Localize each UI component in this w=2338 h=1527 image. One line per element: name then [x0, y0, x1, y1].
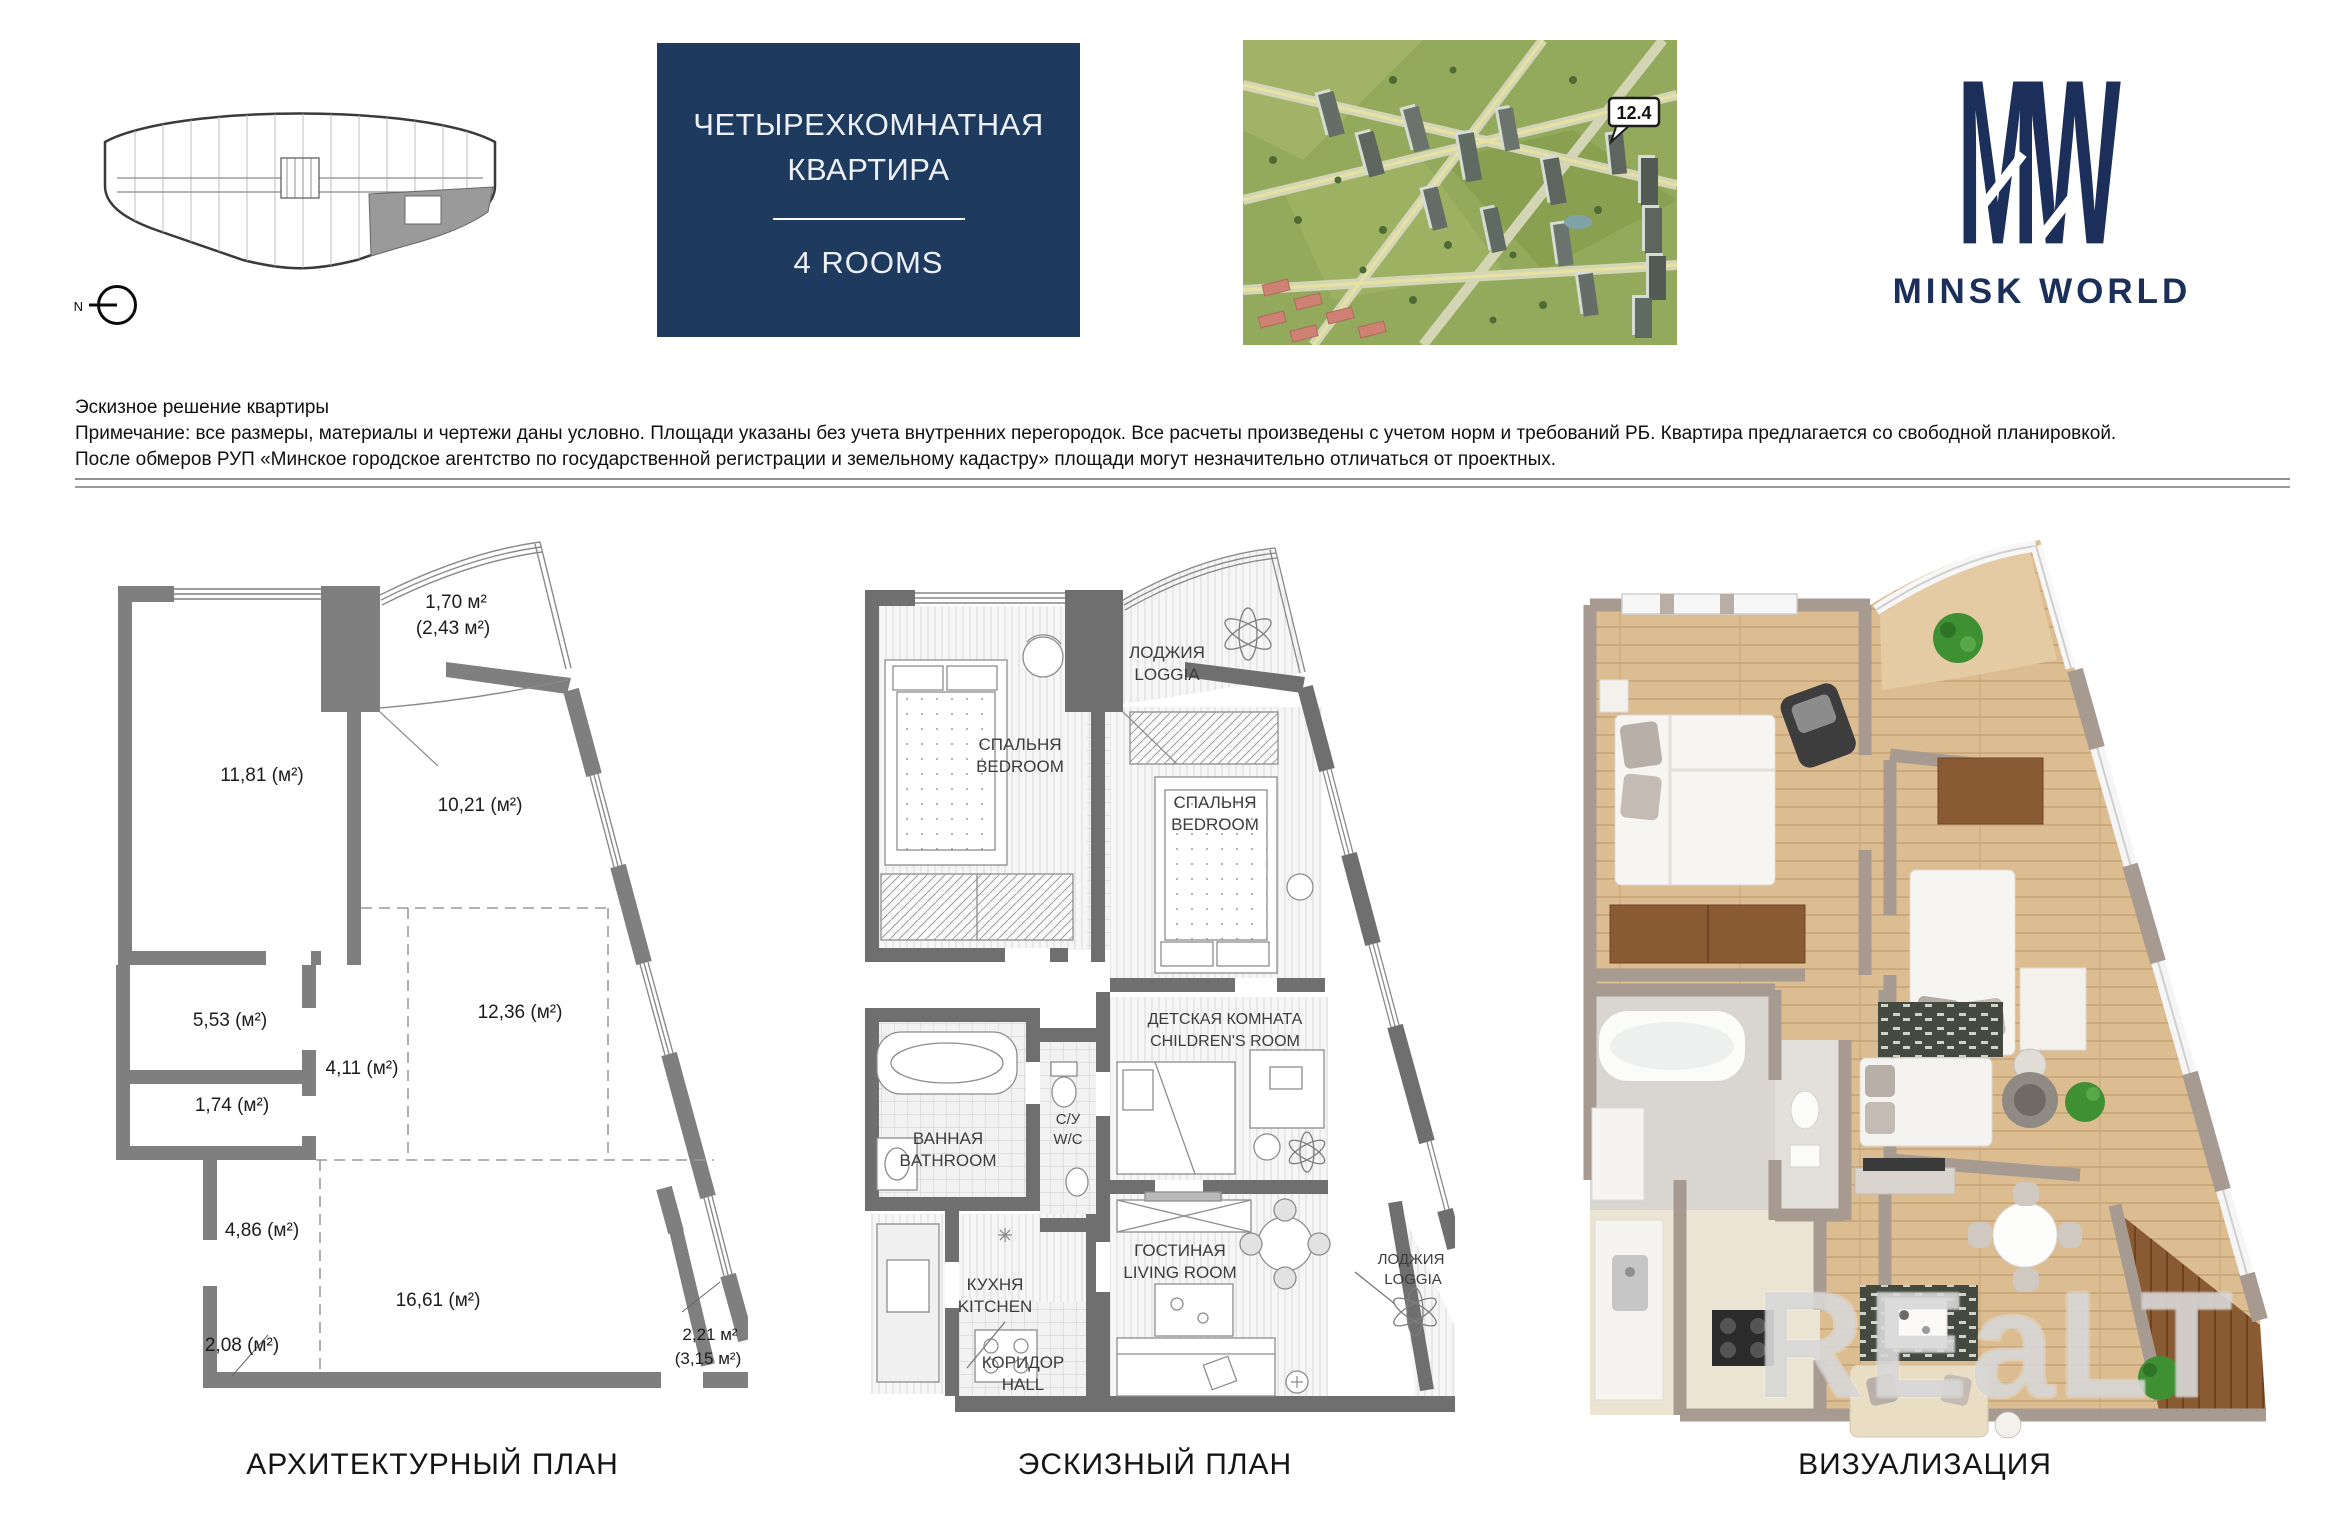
area-12-36: 12,36 (м²)	[478, 1002, 563, 1023]
key-plan: N	[55, 30, 515, 340]
arch-dashed-partitions	[316, 908, 714, 1372]
label-children-ru: ДЕТСКАЯ КОМНАТА	[1148, 1011, 1303, 1028]
disclaimer-line-2: Примечание: все размеры, материалы и чер…	[75, 421, 2315, 447]
area-5-53: 5,53 (м²)	[193, 1010, 267, 1031]
area-2-08: 2,08 (м²)	[205, 1335, 279, 1356]
label-loggia-top-en: LOGGIA	[1134, 665, 1200, 684]
arch-window-top	[174, 586, 321, 602]
flyer-page: N ЧЕТЫРЕХКОМНАТНАЯ КВАРТИРА 4 ROOMS	[0, 0, 2338, 1527]
arch-area-labels: 1,70 м² (2,43 м²) 11,81 (м²) 10,21 (м²) …	[193, 592, 741, 1368]
label-loggia-bottom-en: LOGGIA	[1384, 1271, 1442, 1288]
building-number-label: 12.4	[1616, 103, 1651, 123]
title-line-2: КВАРТИРА	[787, 152, 949, 188]
area-loggia-top-total: (2,43 м²)	[416, 618, 490, 639]
arch-diagonal-wall	[571, 690, 746, 1340]
arch-loggia2-wall	[676, 1230, 708, 1365]
area-1-74: 1,74 (м²)	[195, 1095, 269, 1116]
label-hall-ru: КОРИДОР	[982, 1353, 1065, 1372]
label-loggia-bottom-ru: ЛОДЖИЯ	[1378, 1251, 1445, 1268]
area-11-81: 11,81 (м²)	[220, 765, 303, 786]
caption-sketch-plan: ЭСКИЗНЫЙ ПЛАН	[855, 1448, 1455, 1482]
area-16-61: 16,61 (м²)	[396, 1290, 481, 1311]
label-bathroom-ru: ВАННАЯ	[913, 1129, 983, 1148]
label-children-en: CHILDREN'S ROOM	[1150, 1033, 1300, 1050]
aerial-render: 12.4	[1243, 40, 1677, 345]
north-label: N	[74, 299, 83, 314]
label-loggia-top-ru: ЛОДЖИЯ	[1129, 643, 1205, 662]
label-wc-en: W/C	[1053, 1131, 1082, 1148]
area-10-21: 10,21 (м²)	[438, 795, 523, 816]
stair-core	[281, 158, 319, 198]
area-4-86: 4,86 (м²)	[225, 1220, 299, 1241]
label-hall-en: HALL	[1002, 1375, 1045, 1394]
label-bedroom2-en: BEDROOM	[1171, 815, 1259, 834]
label-kitchen-en: KITCHEN	[958, 1297, 1033, 1316]
disclaimer: Эскизное решение квартиры Примечание: вс…	[75, 395, 2315, 473]
title-subtitle: 4 ROOMS	[794, 245, 944, 281]
label-living-ru: ГОСТИНАЯ	[1134, 1241, 1226, 1260]
north-arrow: N	[74, 287, 136, 324]
caption-visualization: ВИЗУАЛИЗАЦИЯ	[1560, 1448, 2290, 1482]
disclaimer-line-3: После обмеров РУП «Минское городское аге…	[75, 447, 2315, 473]
photo-watermark: REaLT	[1755, 1258, 2315, 1433]
label-kitchen-ru: КУХНЯ	[967, 1275, 1024, 1294]
building-footprint	[105, 108, 495, 268]
label-wc-ru: С/У	[1056, 1111, 1081, 1128]
label-bedroom2-ru: СПАЛЬНЯ	[1173, 793, 1256, 812]
logo-brand-text: MINSK WORLD	[1862, 272, 2222, 312]
architectural-plan: 1,70 м² (2,43 м²) 11,81 (м²) 10,21 (м²) …	[116, 540, 748, 1400]
area-loggia-top: 1,70 м²	[425, 592, 487, 613]
disclaimer-line-1: Эскизное решение квартиры	[75, 395, 2315, 421]
label-bedroom1-ru: СПАЛЬНЯ	[978, 735, 1061, 754]
label-bathroom-en: BATHROOM	[900, 1151, 997, 1170]
title-divider	[773, 218, 965, 220]
title-block: ЧЕТЫРЕХКОМНАТНАЯ КВАРТИРА 4 ROOMS	[657, 43, 1080, 337]
caption-architectural-plan: АРХИТЕКТУРНЫЙ ПЛАН	[120, 1448, 745, 1482]
label-bedroom1-en: BEDROOM	[976, 757, 1064, 776]
horizontal-rule	[75, 478, 2290, 488]
area-4-11: 4,11 (м²)	[326, 1058, 399, 1079]
area-loggia-bottom: 2,21 м²	[682, 1325, 737, 1344]
label-living-en: LIVING ROOM	[1123, 1263, 1236, 1282]
logo-monogram: MW	[1957, 62, 2127, 262]
sketch-plan: СПАЛЬНЯ BEDROOM ЛОДЖИЯ LOGGIA СПАЛЬНЯ BE…	[855, 542, 1455, 1432]
title-line-1: ЧЕТЫРЕХКОМНАТНАЯ	[693, 107, 1043, 143]
viz-wc-floor	[1775, 1040, 1845, 1220]
area-loggia-bottom-total: (3,15 м²)	[675, 1349, 741, 1368]
